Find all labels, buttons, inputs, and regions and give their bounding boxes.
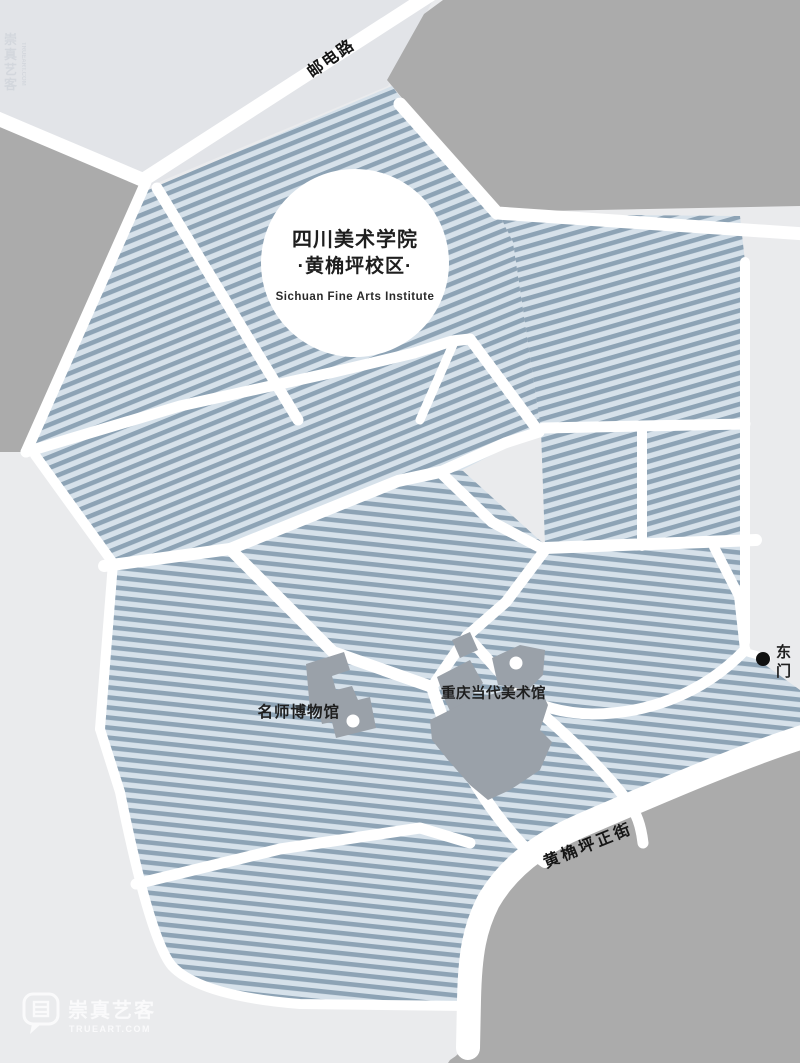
watermark-domain: TRUEART.COM bbox=[69, 1024, 151, 1034]
east-gate-label-bottom: 门 bbox=[776, 662, 791, 680]
watermark-domain-vertical: TRUEART.COM bbox=[20, 42, 26, 86]
watermark-char: 真 bbox=[4, 47, 17, 62]
watermark-char: 艺 bbox=[4, 62, 17, 77]
master-museum-entrance-dot bbox=[347, 715, 360, 728]
map-canvas: 四川美术学院 ·黄桷坪校区· Sichuan Fine Arts Institu… bbox=[0, 0, 800, 1063]
art-museum-label: 重庆当代美术馆 bbox=[441, 684, 546, 702]
campus-title-en: Sichuan Fine Arts Institute bbox=[276, 291, 435, 303]
campus-map: 四川美术学院 ·黄桷坪校区· Sichuan Fine Arts Institu… bbox=[0, 0, 800, 1063]
east-gate-label-top: 东 bbox=[776, 643, 791, 661]
east-gate-dot bbox=[756, 652, 770, 666]
watermark-char: 客 bbox=[4, 77, 18, 92]
watermark-name: 崇真艺客 bbox=[68, 998, 156, 1022]
campus-title-cn: 四川美术学院 bbox=[292, 227, 418, 251]
master-museum-label: 名师博物馆 bbox=[257, 702, 340, 721]
watermark-char: 崇 bbox=[4, 32, 17, 47]
campus-subtitle-cn: ·黄桷坪校区· bbox=[298, 254, 413, 277]
campus-title-badge: 四川美术学院 ·黄桷坪校区· Sichuan Fine Arts Institu… bbox=[261, 169, 449, 357]
art-museum-entrance-dot bbox=[510, 657, 523, 670]
